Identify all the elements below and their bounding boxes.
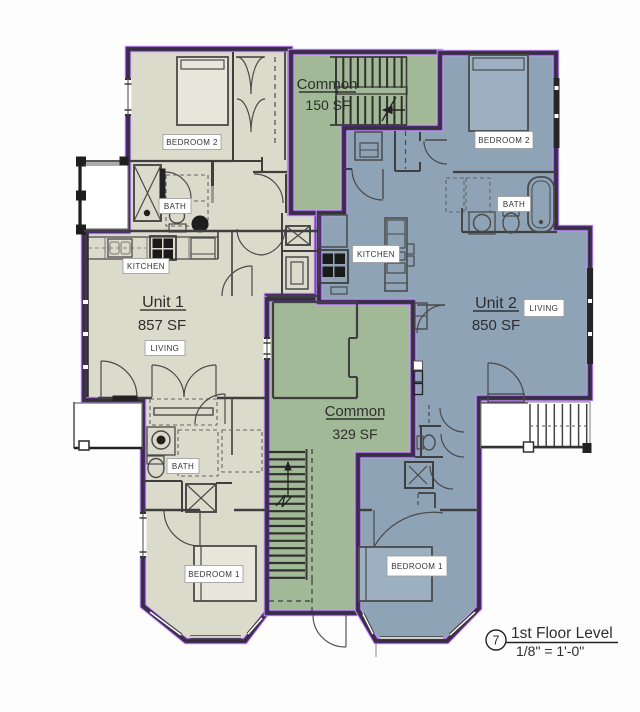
svg-text:Unit 2: Unit 2 <box>475 295 517 312</box>
svg-text:Common: Common <box>297 76 358 93</box>
svg-text:1st Floor Level: 1st Floor Level <box>511 625 613 642</box>
svg-text:Common: Common <box>325 403 386 420</box>
svg-text:7: 7 <box>493 634 500 648</box>
svg-text:BEDROOM 1: BEDROOM 1 <box>188 570 240 579</box>
svg-text:1/8" = 1'-0": 1/8" = 1'-0" <box>516 643 584 659</box>
svg-text:BATH: BATH <box>164 202 186 211</box>
svg-text:BATH: BATH <box>172 462 194 471</box>
svg-text:857 SF: 857 SF <box>138 317 186 334</box>
svg-text:LIVING: LIVING <box>530 304 559 313</box>
svg-text:KITCHEN: KITCHEN <box>127 262 165 271</box>
svg-text:Unit 1: Unit 1 <box>142 294 184 311</box>
svg-text:850 SF: 850 SF <box>472 317 520 334</box>
svg-text:KITCHEN: KITCHEN <box>357 250 395 259</box>
svg-text:329 SF: 329 SF <box>332 426 377 442</box>
svg-text:BEDROOM 1: BEDROOM 1 <box>391 562 443 571</box>
svg-text:BATH: BATH <box>503 200 525 209</box>
svg-text:BEDROOM 2: BEDROOM 2 <box>478 136 530 145</box>
svg-text:150 SF: 150 SF <box>305 97 350 113</box>
svg-text:LIVING: LIVING <box>151 344 180 353</box>
svg-text:BEDROOM 2: BEDROOM 2 <box>166 138 218 147</box>
